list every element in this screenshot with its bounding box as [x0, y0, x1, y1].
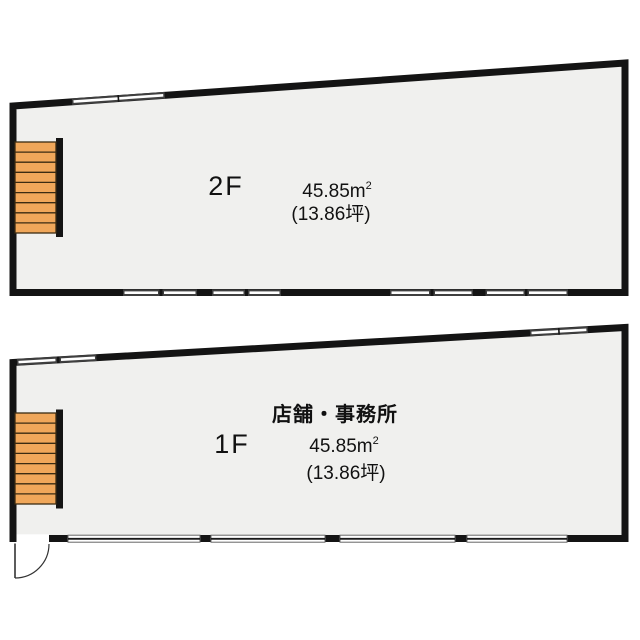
window-icon: [248, 289, 281, 296]
staircase-2f-icon: [15, 138, 63, 237]
window-icon: [486, 289, 526, 296]
window-icon: [467, 535, 567, 542]
floor-1f-area-tsubo: (13.86坪): [306, 462, 385, 484]
floorplan-canvas: 2F 45.85m2 (13.86坪): [0, 0, 640, 640]
window-icon: [528, 289, 569, 296]
window-icon: [163, 289, 198, 296]
floor-1f-label: 1F: [214, 429, 250, 459]
window-icon: [123, 289, 160, 296]
floor-2f-plan: 2F 45.85m2 (13.86坪): [13, 63, 625, 296]
door-swing-arc-icon: [15, 544, 49, 578]
window-icon: [212, 289, 245, 296]
storefront-window-row: [68, 535, 567, 542]
staircase-1f-icon: [15, 410, 63, 509]
floor-2f-label: 2F: [208, 171, 244, 201]
floor-2f-area-tsubo: (13.86坪): [291, 203, 370, 225]
window-icon: [68, 535, 200, 542]
floor-1f-walls: [13, 328, 625, 539]
floor-1f-plan: 店舗・事務所 1F 45.85m2 (13.86坪): [13, 326, 625, 578]
window-icon: [434, 289, 474, 296]
floor-2f-area: 45.85m2: [302, 180, 372, 202]
window-icon: [340, 535, 455, 542]
door-opening: [17, 534, 50, 543]
floor-1f-area: 45.85m2: [309, 435, 379, 457]
floor-1f-usage-label: 店舗・事務所: [272, 402, 398, 426]
entrance-door: [15, 534, 49, 578]
floorplan-drawing: 2F 45.85m2 (13.86坪): [0, 0, 640, 640]
window-icon: [211, 535, 325, 542]
window-icon: [390, 289, 431, 296]
